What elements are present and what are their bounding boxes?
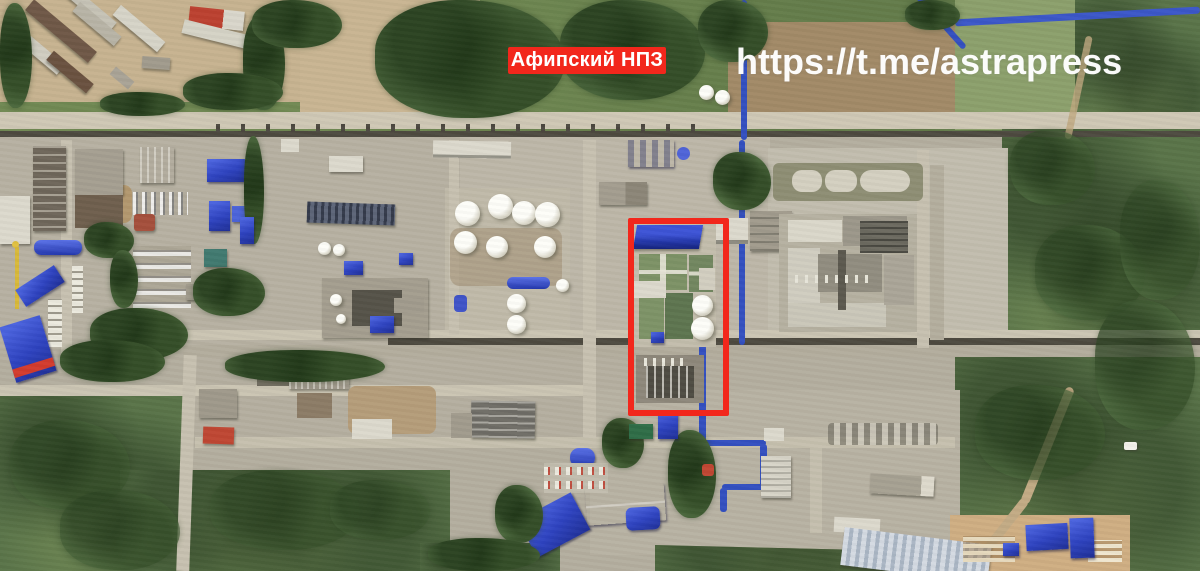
trees <box>495 485 543 543</box>
road-vertical-center <box>583 140 596 438</box>
teal-roof-building <box>204 249 227 267</box>
red-roof-building <box>134 214 155 231</box>
building <box>199 389 237 418</box>
satellite-image: Афипский НПЗ https://t.me/astrapress <box>0 0 1200 571</box>
shed <box>142 56 171 70</box>
parking-lot <box>133 192 188 215</box>
pipe-racks <box>860 221 908 253</box>
storage-tank <box>556 279 569 292</box>
blue-roof-building <box>1025 523 1068 551</box>
parked-trucks <box>72 266 83 313</box>
storage-tank <box>454 231 477 254</box>
blue-roof-building <box>399 253 413 265</box>
shed <box>281 139 299 152</box>
plant-block <box>818 254 882 292</box>
long-industrial-building <box>307 201 396 225</box>
trees <box>975 385 1105 480</box>
green-roof-building <box>629 424 653 439</box>
plant-pad <box>825 170 857 192</box>
storage-tank <box>455 201 480 226</box>
plant-pad <box>860 170 910 192</box>
storage-tank <box>534 236 556 258</box>
blue-tank-building <box>34 240 82 255</box>
parked-trucks <box>48 299 62 347</box>
plant-block <box>884 255 914 305</box>
blue-tank <box>677 147 690 160</box>
storage-tank <box>715 90 730 105</box>
blue-roof-building <box>370 316 394 333</box>
storage-tank <box>318 242 331 255</box>
building <box>297 393 332 418</box>
red-stripe <box>12 357 55 378</box>
warehouse <box>471 400 536 438</box>
parking-lot <box>133 246 191 308</box>
warehouse <box>761 456 791 498</box>
crane <box>15 247 19 309</box>
trees <box>193 268 265 316</box>
red-roof-building <box>203 426 235 444</box>
highlight-rectangle <box>628 218 729 416</box>
warehouse <box>140 147 174 183</box>
long-building <box>433 140 511 158</box>
white-truck <box>1124 442 1137 450</box>
trees <box>183 73 283 110</box>
blue-roof-building <box>209 201 230 231</box>
blue-roof-building <box>207 159 245 182</box>
tank-row <box>795 275 875 283</box>
factory-building <box>75 149 123 195</box>
trees <box>905 0 960 30</box>
trees <box>1010 130 1095 205</box>
blue-horizontal-tank <box>507 277 550 289</box>
watermark-url: https://t.me/astrapress <box>736 41 1122 83</box>
blue-quonset <box>625 506 660 531</box>
trees <box>60 340 165 382</box>
plant-strip <box>930 165 944 340</box>
pipe-rack-ticks <box>195 124 710 132</box>
storage-tank <box>486 236 508 258</box>
storage-tank <box>507 294 526 313</box>
shed <box>764 428 784 441</box>
storage-tank <box>488 194 513 219</box>
storage-tank <box>699 85 714 100</box>
storage-tank <box>333 244 345 256</box>
plant-block <box>788 303 886 327</box>
shed <box>329 156 363 172</box>
trees <box>1095 300 1195 430</box>
blue-roof-building <box>240 217 254 244</box>
trees <box>110 250 138 308</box>
factory-building <box>33 146 66 231</box>
blue-roof-building <box>344 261 363 275</box>
blue-small-tank <box>454 295 467 312</box>
red-structure <box>702 464 714 476</box>
plant-block <box>788 220 842 242</box>
trees <box>330 480 430 540</box>
material-rows <box>828 423 938 445</box>
trees <box>225 350 385 382</box>
pipeline-zigzag-4 <box>720 488 727 512</box>
trees <box>252 0 342 48</box>
storage-tank <box>336 314 346 324</box>
road-vertical-yard <box>810 448 822 533</box>
storage-tank <box>512 201 536 225</box>
building <box>451 413 472 438</box>
trees <box>1120 180 1200 300</box>
building <box>394 298 424 313</box>
trees <box>0 3 32 108</box>
pipe-rack-middle <box>388 338 1200 345</box>
blue-process-unit <box>628 140 674 167</box>
trees <box>60 490 180 570</box>
trees <box>100 92 185 116</box>
storage-tank <box>535 202 560 227</box>
parked-trucks <box>544 467 608 475</box>
blue-roof-building <box>1003 543 1019 556</box>
building <box>599 182 647 205</box>
blue-roof-building <box>1069 518 1094 559</box>
long-building <box>870 473 935 496</box>
plant-pad <box>792 170 822 192</box>
trees <box>428 538 540 571</box>
refinery-label: Афипский НПЗ <box>508 47 666 74</box>
storage-tank <box>330 294 342 306</box>
storage-tank <box>507 315 526 334</box>
warehouse <box>0 196 30 244</box>
shed <box>352 419 392 439</box>
trees <box>713 152 771 210</box>
